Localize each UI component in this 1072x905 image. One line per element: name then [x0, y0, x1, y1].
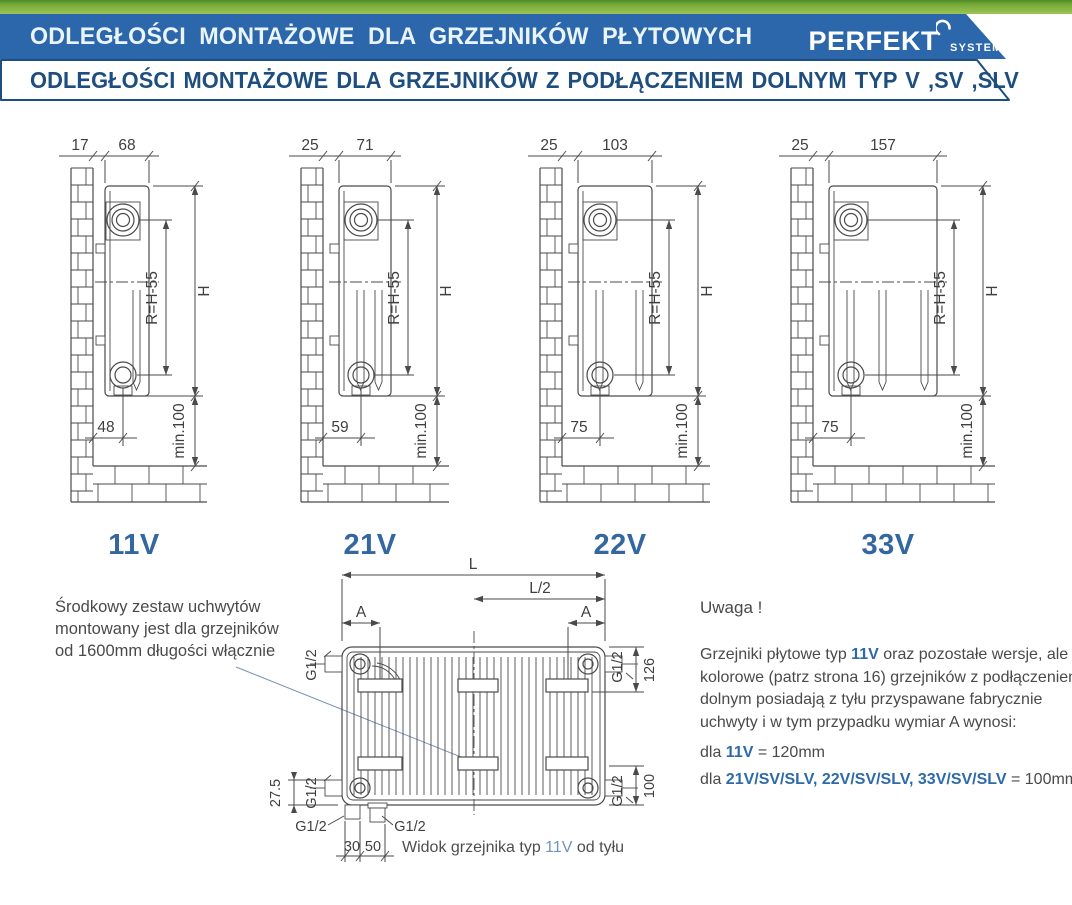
svg-text:G1/2: G1/2: [610, 775, 626, 806]
svg-text:103: 103: [602, 137, 628, 154]
rear-view-caption: Widok grzejnika typ 11V od tyłu: [402, 839, 624, 856]
attention-title: Uwaga !: [700, 598, 1072, 618]
svg-text:100: 100: [642, 774, 658, 798]
svg-text:59: 59: [331, 419, 348, 436]
svg-text:H: H: [984, 285, 1001, 296]
radiator-side-diagram-21v: 2571R=H-55Hmin.10059 21V: [277, 132, 463, 562]
svg-text:min.100: min.100: [171, 403, 188, 459]
svg-text:H: H: [699, 285, 716, 296]
svg-text:min.100: min.100: [959, 403, 976, 459]
svg-text:17: 17: [71, 137, 88, 154]
radiator-type-label: 33V: [767, 529, 1009, 562]
attention-paragraph: Grzejniki płytowe typ 11V oraz pozostałe…: [700, 644, 1072, 735]
page-title: ODLEGŁOŚCI MONTAŻOWE DLA GRZEJNIKÓW PŁYT…: [30, 23, 752, 51]
svg-text:68: 68: [118, 137, 135, 154]
svg-text:G1/2: G1/2: [304, 649, 320, 680]
svg-text:71: 71: [356, 137, 373, 154]
svg-text:25: 25: [301, 137, 318, 154]
green-top-strip: [0, 0, 1072, 14]
svg-text:R=H-55: R=H-55: [932, 271, 949, 325]
svg-text:G1/2: G1/2: [394, 819, 425, 835]
brand-sub-name: SYSTEM: [950, 42, 1002, 54]
svg-text:H: H: [438, 285, 455, 296]
diagram-drawing-11v: 1768R=H-55Hmin.10048: [47, 132, 221, 519]
technical-drawing: 1768R=H-55Hmin.10048: [47, 132, 221, 514]
svg-text:50: 50: [365, 839, 381, 855]
svg-text:25: 25: [791, 137, 808, 154]
svg-text:25: 25: [540, 137, 557, 154]
dimension-rule-11v: dla 11V = 120mm: [700, 744, 1072, 762]
svg-text:L: L: [469, 556, 478, 573]
attention-note: Uwaga ! Grzejniki płytowe typ 11V oraz p…: [700, 598, 1072, 789]
svg-text:min.100: min.100: [413, 403, 430, 459]
svg-text:27.5: 27.5: [268, 779, 284, 807]
svg-text:48: 48: [97, 419, 114, 436]
technical-drawing: 25103R=H-55Hmin.10075: [516, 132, 724, 514]
svg-text:A: A: [356, 604, 367, 621]
svg-text:R=H-55: R=H-55: [386, 271, 403, 325]
svg-text:G1/2: G1/2: [304, 777, 320, 808]
svg-text:30: 30: [344, 839, 360, 855]
title-banner-content: ODLEGŁOŚCI MONTAŻOWE DLA GRZEJNIKÓW PŁYT…: [30, 14, 1002, 59]
svg-text:157: 157: [870, 137, 896, 154]
rear-view-drawing: LL/2AAG1/2G1/227.5G1/2126G1/21003050G1/2…: [230, 553, 674, 900]
technical-drawing: 2571R=H-55Hmin.10059: [277, 132, 463, 514]
svg-text:R=H-55: R=H-55: [144, 271, 161, 325]
svg-text:L/2: L/2: [529, 580, 551, 597]
radiator-type-label: 11V: [47, 529, 221, 562]
brand-name: PERFEKT: [809, 28, 939, 55]
svg-text:H: H: [196, 285, 213, 296]
svg-text:75: 75: [821, 419, 838, 436]
brand-logo: PERFEKT SYSTEM: [809, 18, 1003, 55]
svg-text:G1/2: G1/2: [295, 819, 326, 835]
technical-drawing: 25157R=H-55Hmin.10075: [767, 132, 1009, 514]
page-subtitle: ODLEGŁOŚCI MONTAŻOWE DLA GRZEJNIKÓW Z PO…: [30, 62, 933, 99]
svg-text:A: A: [581, 604, 592, 621]
svg-text:R=H-55: R=H-55: [647, 271, 664, 325]
svg-text:min.100: min.100: [674, 403, 691, 459]
svg-text:75: 75: [570, 419, 587, 436]
svg-text:G1/2: G1/2: [610, 651, 626, 682]
dimension-rule-other: dla 21V/SV/SLV, 22V/SV/SLV, 33V/SV/SLV =…: [700, 771, 1072, 789]
diagram-drawing-33v: 25157R=H-55Hmin.10075: [767, 132, 1009, 519]
radiator-rear-view-diagram: LL/2AAG1/2G1/227.5G1/2126G1/21003050G1/2…: [230, 553, 674, 905]
svg-text:126: 126: [642, 658, 658, 682]
radiator-side-diagram-22v: 25103R=H-55Hmin.10075 22V: [516, 132, 724, 562]
diagram-drawing-22v: 25103R=H-55Hmin.10075: [516, 132, 724, 519]
radiator-side-diagram-11v: 1768R=H-55Hmin.10048 11V: [47, 132, 221, 562]
radiator-side-diagram-33v: 25157R=H-55Hmin.10075 33V: [767, 132, 1009, 562]
diagram-drawing-21v: 2571R=H-55Hmin.10059: [277, 132, 463, 519]
